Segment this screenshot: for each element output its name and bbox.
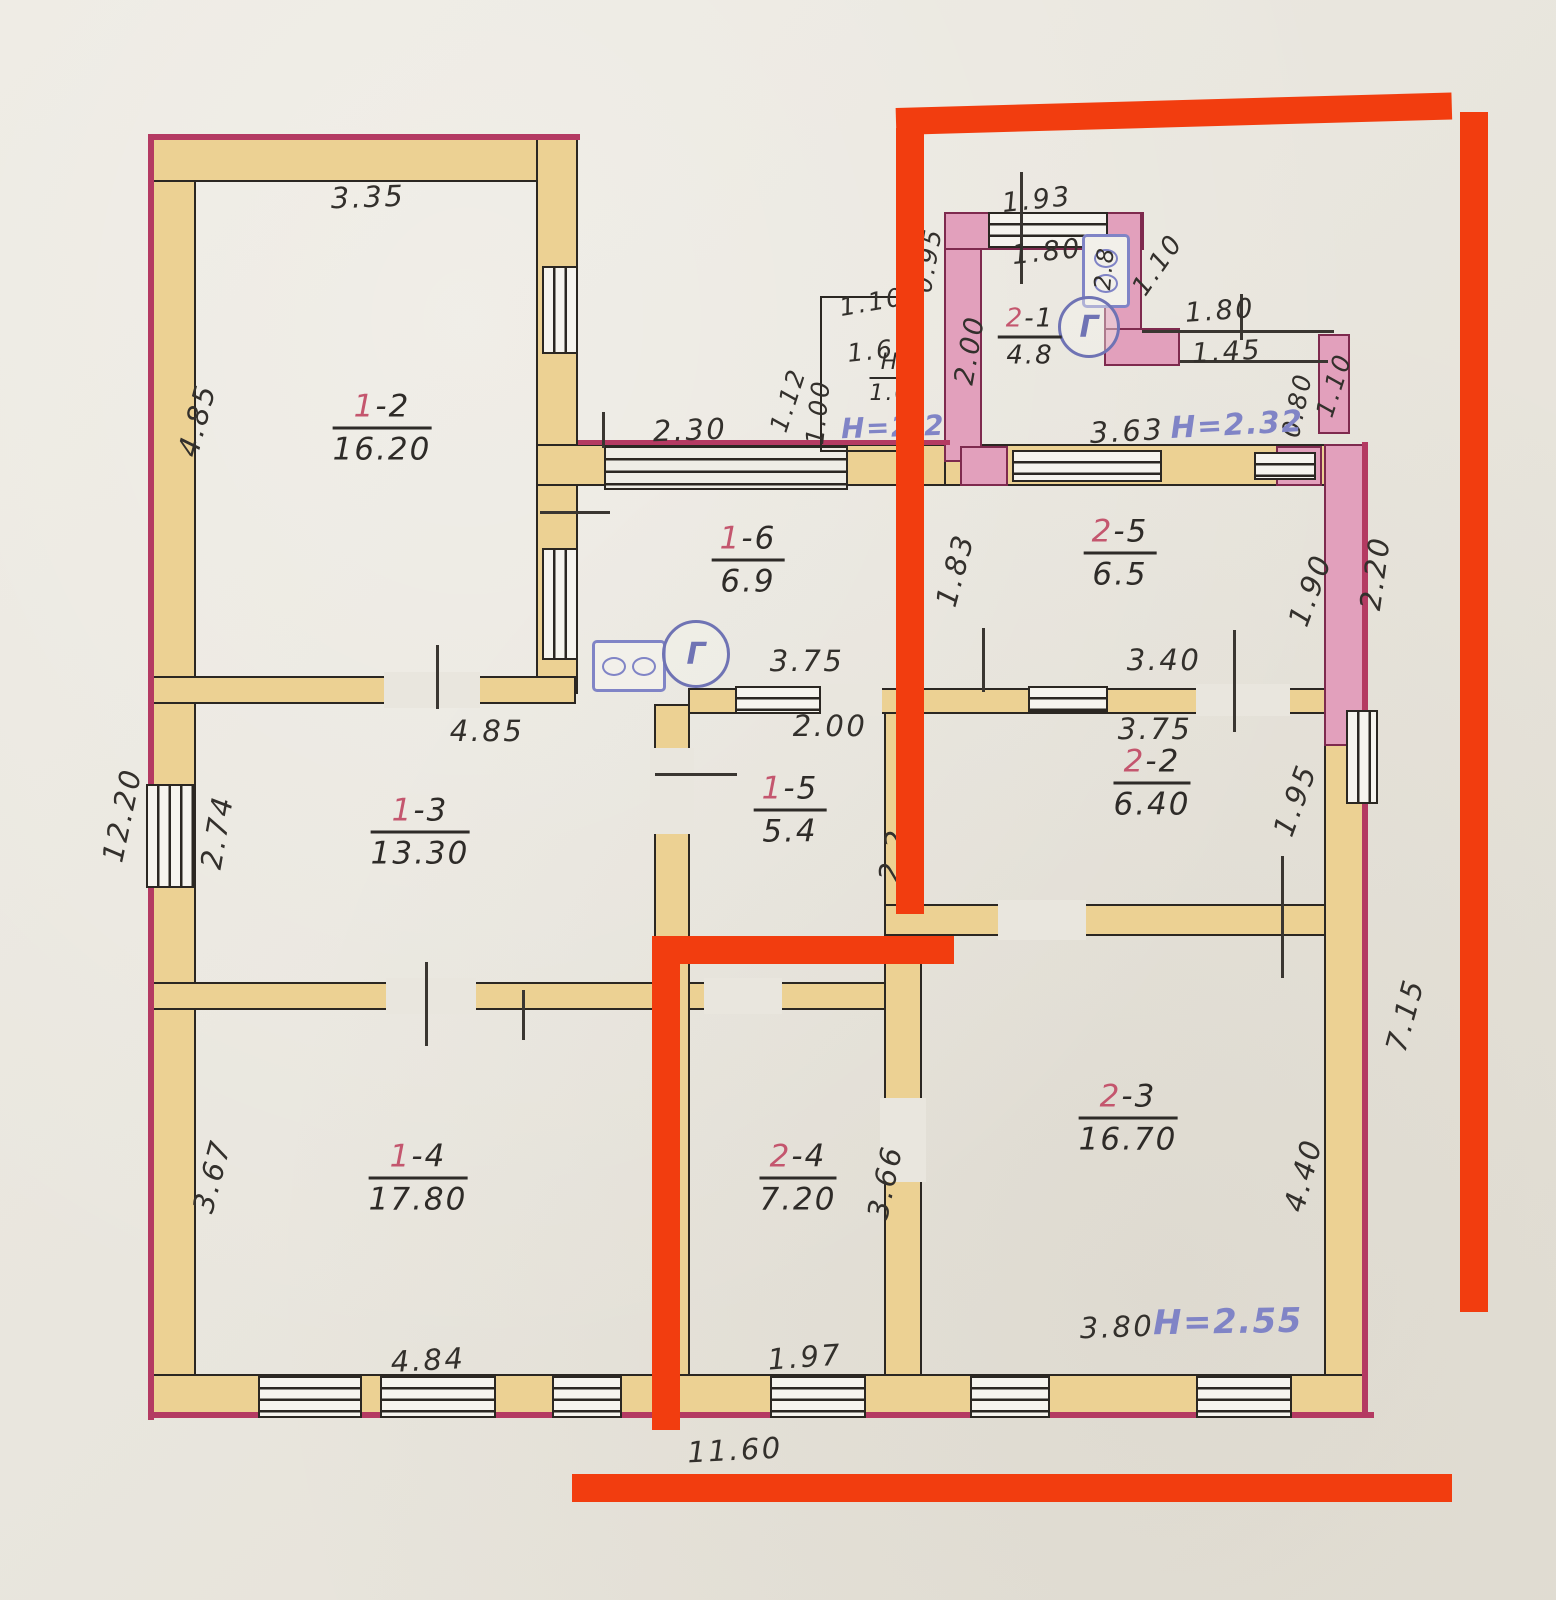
- tick-line: [982, 628, 985, 692]
- window-bottom-6: [1196, 1376, 1292, 1418]
- window-bottom-1: [258, 1376, 362, 1418]
- dim-2-2-right: 1.95: [1266, 759, 1323, 841]
- dim-left-total: 12.20: [95, 765, 148, 866]
- dim-passage-top: 1.80: [1184, 293, 1256, 329]
- window-mid-top-a: [1012, 450, 1162, 482]
- burner-icon: [632, 657, 656, 676]
- dim-top-1-3: 4.85: [450, 714, 525, 748]
- marker-line-top: [896, 92, 1453, 135]
- gas-meter-icon-kitchen: Г: [1058, 296, 1120, 358]
- dim-2-5-bottom: 3.40: [1127, 643, 1202, 677]
- gas-meter-letter: Г: [1079, 310, 1098, 345]
- tick-line: [522, 990, 525, 1040]
- wall-22-23: [884, 904, 1326, 936]
- window-bottom-5: [970, 1376, 1050, 1418]
- dim-2-4-bottom: 1.97: [767, 1337, 844, 1376]
- dim-2-3-bottom: 3.80: [1079, 1309, 1155, 1346]
- tick-line: [1233, 630, 1236, 732]
- tick-line: [436, 645, 439, 709]
- room-label-1-3: 1-3 13.30: [371, 793, 470, 872]
- dim-2-2-top: 3.75: [1118, 712, 1193, 746]
- marker-line-left-upper: [896, 128, 924, 914]
- dim-steps-width: 2.30: [652, 412, 728, 449]
- wall-exterior-left: [152, 138, 196, 1416]
- wall-12-13: [152, 676, 576, 704]
- outer-edge-top: [148, 134, 580, 140]
- room-label-1-4: 1-4 17.80: [369, 1139, 468, 1218]
- window-room22-right: [1346, 710, 1378, 804]
- room-label-1-2: 1-2 16.20: [333, 389, 432, 468]
- marker-line-middle: [652, 936, 954, 964]
- dim-left-1-3: 2.74: [194, 792, 240, 871]
- tick-line: [1281, 856, 1284, 978]
- height-note-porch: H=2.2: [840, 409, 945, 446]
- height-note-passage: H=2.32: [1170, 404, 1305, 446]
- window-mid-top-b: [1254, 452, 1316, 480]
- dim-bottom-total: 11.60: [686, 1431, 783, 1470]
- floor-plan-sheet: Г Г 1-2 16.20 1-3 13.30 1-4 17.80 1-5 5.…: [0, 0, 1556, 1600]
- stove-icon: [592, 640, 666, 692]
- room-label-1-6: 1-6 6.9: [712, 521, 785, 600]
- room-label-2-4: 2-4 7.20: [759, 1139, 836, 1218]
- door-25-22: [1196, 684, 1290, 716]
- dim-right-lower: 7.15: [1379, 975, 1431, 1056]
- dim-kitchen-window: 1.80: [1011, 233, 1084, 271]
- dim-2-5-left: 1.83: [929, 530, 981, 611]
- marker-line-bottom: [572, 1474, 1452, 1502]
- room-label-2-2: 2-2 6.40: [1113, 744, 1190, 823]
- door-13-14: [386, 978, 476, 1014]
- door-12-13: [384, 672, 480, 708]
- dim-passage-bottom: 3.63: [1089, 412, 1165, 450]
- tick-line: [425, 962, 428, 1046]
- room-label-2-5: 2-5 6.5: [1084, 514, 1157, 593]
- dim-stove-note: 2.8: [1090, 245, 1120, 291]
- door-13-15: [650, 748, 694, 834]
- tick-line: [540, 511, 610, 514]
- window-room12-right-lower: [542, 548, 578, 660]
- door-15-24: [704, 978, 782, 1014]
- burner-icon: [602, 657, 626, 676]
- window-bottom-3: [552, 1376, 622, 1418]
- entrance-steps: [604, 446, 848, 490]
- marker-line-left-lower: [652, 962, 680, 1430]
- wall-exterior-top-room12: [152, 138, 576, 182]
- window-room12-right-upper: [542, 266, 578, 354]
- tick-line: [655, 773, 737, 776]
- window-left-wall: [146, 784, 196, 888]
- dim-2-3-right: 4.40: [1277, 1135, 1329, 1216]
- dim-top-1-2: 3.35: [330, 179, 406, 216]
- gas-meter-icon: Г: [662, 620, 730, 688]
- window-bottom-2: [380, 1376, 496, 1418]
- tick-line: [602, 412, 605, 448]
- room-label-2-3: 2-3 16.70: [1079, 1079, 1178, 1158]
- room-label-2-1: 2-1 4.8: [998, 304, 1062, 371]
- door-22-23: [998, 900, 1086, 940]
- dim-1-6-bottom: 3.75: [770, 644, 845, 678]
- gas-meter-letter: Г: [686, 637, 705, 672]
- window-bottom-4: [770, 1376, 866, 1418]
- wall-pink-block-a: [960, 446, 1008, 486]
- dim-1-5-top: 2.00: [793, 709, 868, 743]
- dim-bottom-1-4: 4.84: [390, 1341, 466, 1379]
- passage-edge-line: [1142, 330, 1334, 333]
- dim-passage-mid: 1.45: [1191, 335, 1263, 370]
- marker-line-right: [1460, 112, 1488, 1312]
- height-note-2-3: H=2.55: [1153, 1301, 1304, 1344]
- room-label-1-5: 1-5 5.4: [754, 771, 827, 850]
- glazed-door-25: [1028, 686, 1108, 712]
- outer-edge-left: [148, 134, 154, 1420]
